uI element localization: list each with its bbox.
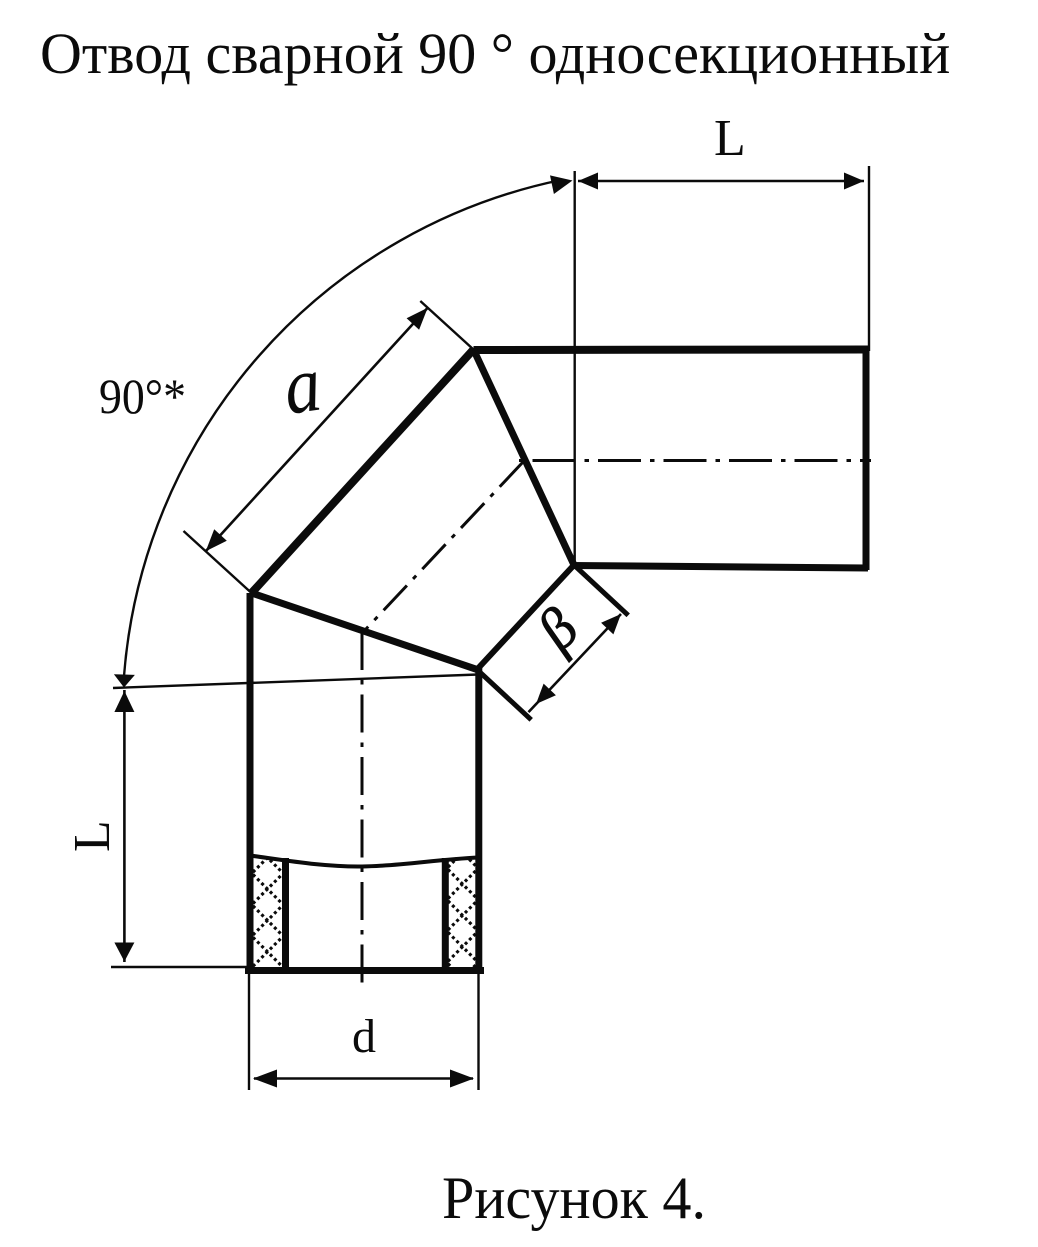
- svg-text:Рисунок 4.: Рисунок 4.: [442, 1165, 706, 1231]
- svg-text:90°*: 90°*: [99, 368, 186, 424]
- svg-text:Отвод сварной 90 ° односекцион: Отвод сварной 90 ° односекционный: [40, 21, 950, 86]
- svg-text:a: a: [278, 339, 326, 431]
- svg-text:β: β: [524, 596, 591, 663]
- svg-text:L: L: [64, 820, 121, 852]
- svg-text:L: L: [714, 110, 746, 167]
- svg-text:d: d: [352, 1010, 376, 1063]
